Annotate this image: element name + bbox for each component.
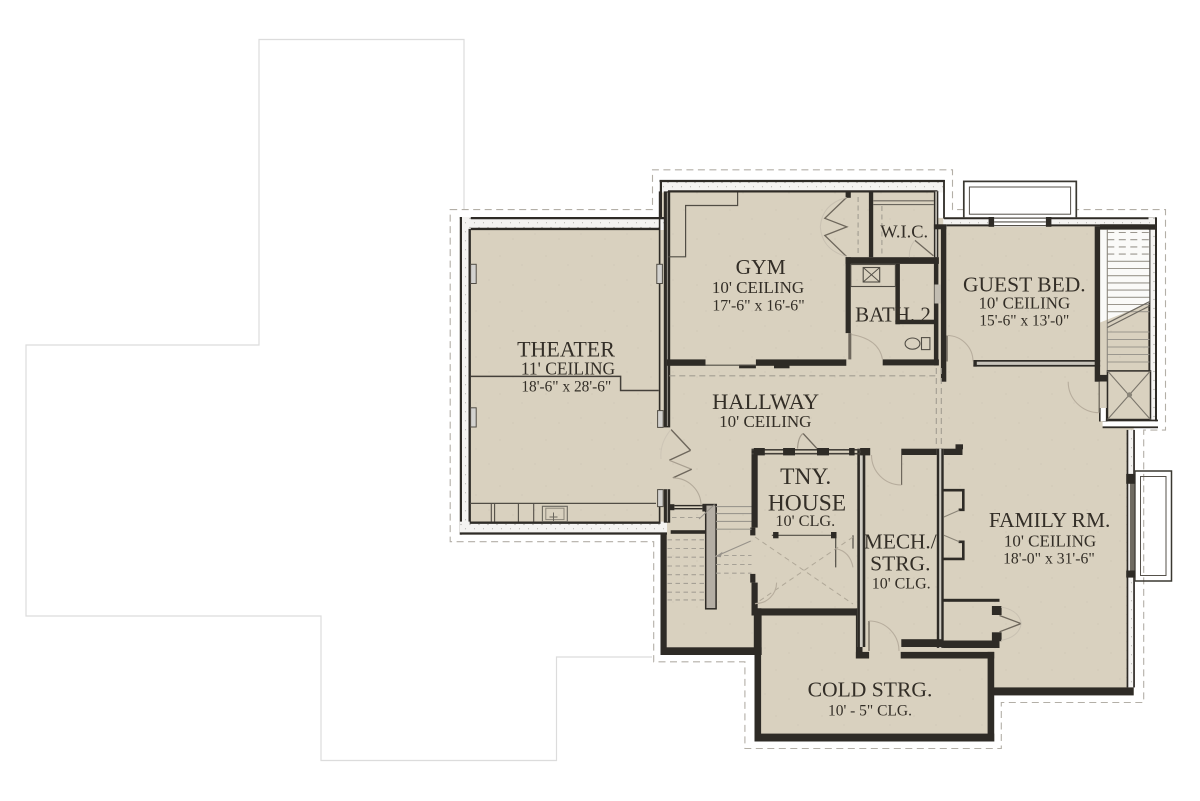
- svg-text:W.I.C.: W.I.C.: [880, 222, 928, 242]
- svg-text:17'-6" x 16'-6": 17'-6" x 16'-6": [712, 297, 804, 314]
- svg-text:18'-6" x 28'-6": 18'-6" x 28'-6": [521, 379, 611, 396]
- svg-text:10' CEILING: 10' CEILING: [719, 412, 811, 431]
- svg-text:15'-6" x 13'-0": 15'-6" x 13'-0": [979, 312, 1069, 329]
- svg-text:10' CLG.: 10' CLG.: [775, 511, 835, 530]
- svg-text:10' CEILING: 10' CEILING: [712, 278, 804, 297]
- svg-text:MECH./: MECH./: [864, 530, 937, 554]
- svg-text:FAMILY RM.: FAMILY RM.: [989, 508, 1110, 532]
- svg-text:STRG.: STRG.: [870, 551, 930, 575]
- svg-text:TNY.: TNY.: [780, 464, 831, 490]
- svg-text:GYM: GYM: [736, 255, 786, 279]
- svg-text:COLD STRG.: COLD STRG.: [808, 677, 933, 701]
- svg-text:10' CEILING: 10' CEILING: [978, 294, 1070, 313]
- svg-text:10' - 5" CLG.: 10' - 5" CLG.: [828, 703, 912, 720]
- svg-text:10' CLG.: 10' CLG.: [872, 576, 931, 593]
- svg-text:18'-0" x 31'-6": 18'-0" x 31'-6": [1003, 551, 1095, 568]
- svg-text:HALLWAY: HALLWAY: [712, 389, 819, 414]
- svg-text:BATH. 2: BATH. 2: [855, 302, 931, 326]
- svg-text:11' CEILING: 11' CEILING: [521, 359, 616, 379]
- svg-text:10' CEILING: 10' CEILING: [1004, 531, 1096, 550]
- svg-text:THEATER: THEATER: [517, 336, 615, 361]
